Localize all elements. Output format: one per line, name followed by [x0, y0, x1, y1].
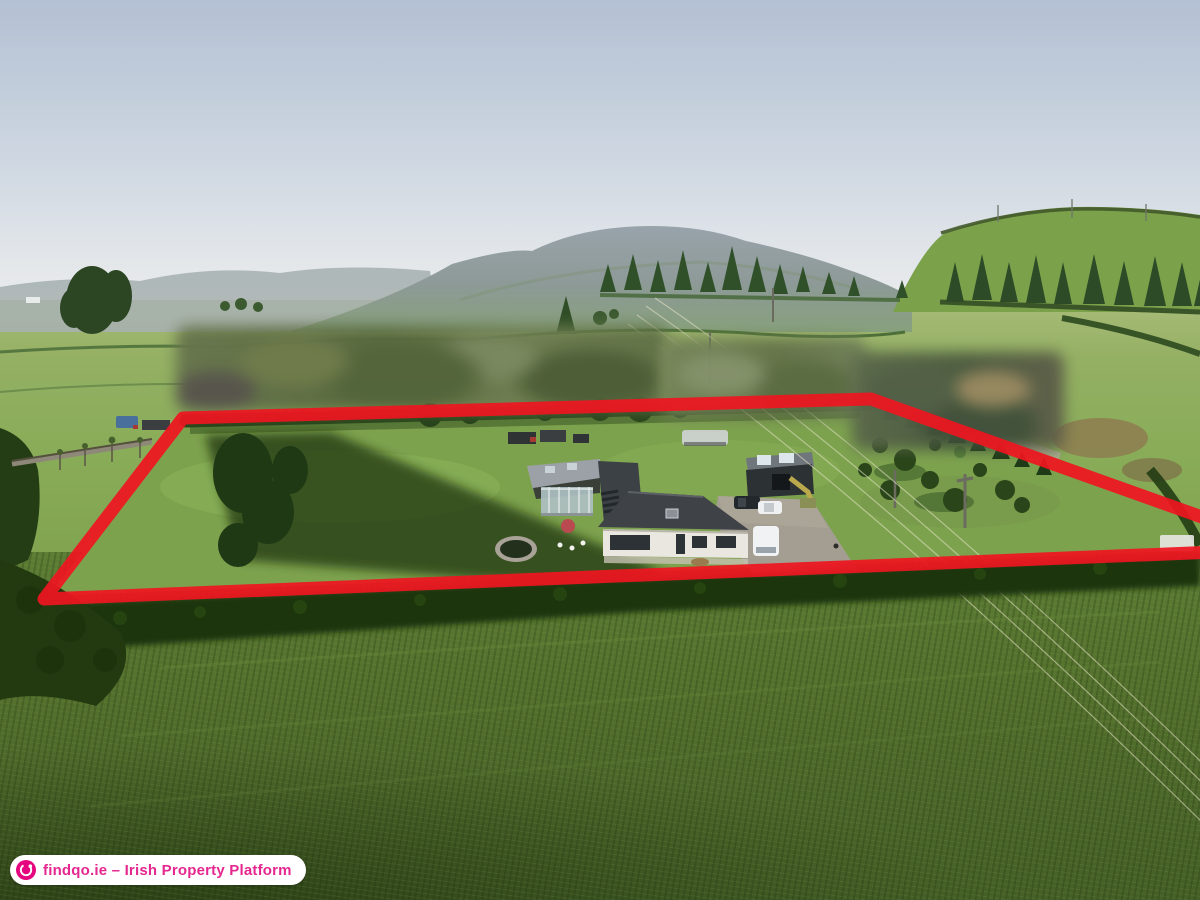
- globe-icon: [16, 860, 36, 880]
- watermark-badge: findqo.ie – Irish Property Platform: [10, 855, 306, 885]
- aerial-property-photo: findqo.ie – Irish Property Platform: [0, 0, 1200, 900]
- property-boundary-outline: [44, 399, 1200, 599]
- boundary-overlay: [0, 0, 1200, 900]
- watermark-label: findqo.ie – Irish Property Platform: [43, 862, 292, 879]
